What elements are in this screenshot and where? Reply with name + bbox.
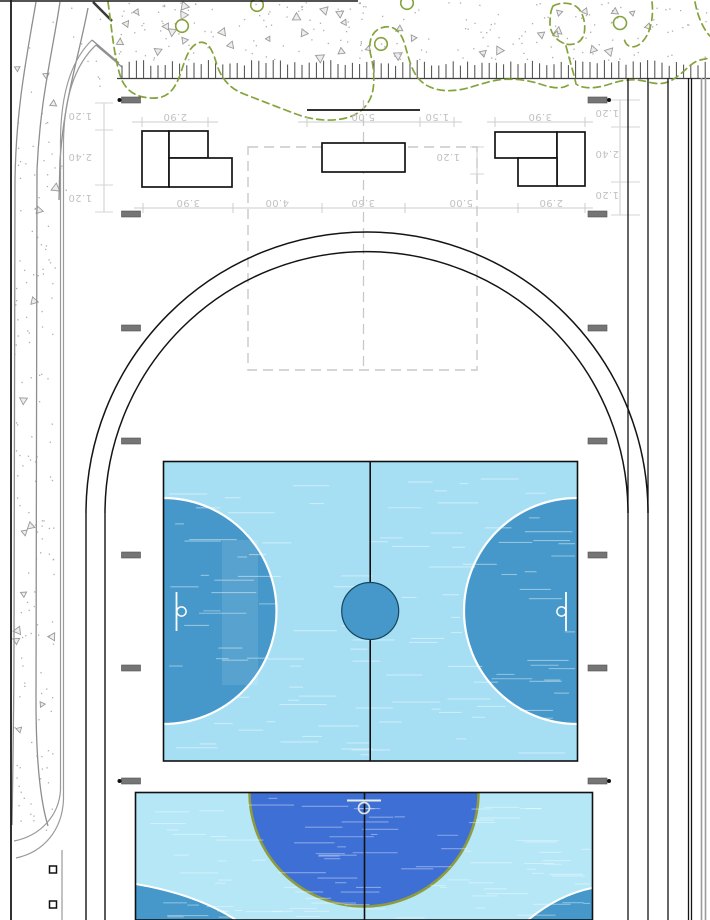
stipple-triangle bbox=[557, 10, 563, 16]
stipple-dot bbox=[17, 765, 18, 766]
tree-symbols bbox=[176, 0, 627, 50]
stipple-dot bbox=[42, 326, 43, 327]
stipple-dot bbox=[359, 58, 360, 59]
stipple-dot bbox=[50, 442, 51, 443]
stipple-dot bbox=[193, 52, 194, 53]
stipple-dot bbox=[245, 49, 246, 50]
stipple-dot bbox=[697, 9, 698, 10]
stipple-dot bbox=[53, 527, 54, 528]
stipple-triangle bbox=[27, 522, 34, 529]
road-curve-mid bbox=[36, 2, 60, 826]
stipple-dot bbox=[52, 283, 53, 284]
stipple-dot bbox=[656, 24, 657, 25]
right-boundary-lines bbox=[628, 78, 706, 920]
stipple-dot bbox=[495, 59, 496, 60]
stipple-triangle bbox=[14, 67, 20, 72]
stipple-dot bbox=[25, 163, 26, 164]
stipple-dot bbox=[268, 13, 269, 14]
stipple-dot bbox=[33, 820, 34, 821]
stipple-dot bbox=[263, 20, 264, 21]
stipple-triangle bbox=[590, 45, 597, 53]
stipple-dot bbox=[555, 26, 556, 27]
stipple-triangle bbox=[338, 48, 345, 55]
stipple-dot bbox=[279, 4, 280, 5]
stipple-dot bbox=[337, 9, 338, 10]
stipple-dot bbox=[544, 17, 545, 18]
stipple-dot bbox=[705, 57, 706, 58]
stipple-dot bbox=[129, 3, 130, 4]
pole-marker-right bbox=[588, 665, 607, 671]
stipple-dot bbox=[61, 165, 62, 166]
stipple-dot bbox=[66, 190, 67, 191]
curb-post-upper bbox=[50, 866, 57, 873]
stipple-dot bbox=[52, 753, 53, 754]
stipple-dot bbox=[73, 36, 74, 37]
stipple-dot bbox=[363, 6, 364, 7]
stipple-dot bbox=[48, 259, 49, 260]
pole-marker-right bbox=[588, 552, 607, 558]
stipple-dot bbox=[33, 815, 34, 816]
stipple-dot bbox=[16, 777, 17, 778]
stipple-triangle bbox=[227, 41, 234, 48]
stipple-dot bbox=[194, 22, 195, 23]
pole-marker-left bbox=[122, 97, 141, 103]
setout-dashed-rectangle bbox=[248, 147, 477, 370]
stipple-dot bbox=[490, 29, 491, 30]
building-left bbox=[142, 131, 232, 187]
stipple-dot bbox=[400, 59, 401, 60]
stipple-dot bbox=[494, 23, 495, 24]
stipple-dot bbox=[47, 186, 48, 187]
stipple-dot bbox=[573, 49, 574, 50]
stipple-dot bbox=[253, 40, 254, 41]
road-curve-outer bbox=[12, 2, 36, 825]
stipple-dot bbox=[306, 2, 307, 3]
stipple-dot bbox=[51, 153, 52, 154]
stipple-dot bbox=[40, 778, 41, 779]
stipple-dot bbox=[403, 19, 404, 20]
site-plan-drawing: 2.90 5.00 1.50 3.90 3.90 4.00 3.60 5.00 … bbox=[0, 0, 710, 920]
stipple-dot bbox=[567, 38, 568, 39]
stipple-dot bbox=[21, 658, 22, 659]
stipple-dot bbox=[283, 45, 284, 46]
stipple-dot bbox=[162, 23, 163, 24]
stipple-dot bbox=[46, 245, 47, 246]
stipple-dot bbox=[53, 574, 54, 575]
stipple-dot bbox=[611, 22, 612, 23]
stipple-dot bbox=[20, 767, 21, 768]
wall-cap-diagonal-2 bbox=[96, 45, 122, 67]
stipple-dot bbox=[38, 197, 39, 198]
stipple-dot bbox=[211, 31, 212, 32]
stipple-dot bbox=[31, 742, 32, 743]
dim-label: 1.50 bbox=[425, 111, 449, 122]
stipple-dot bbox=[48, 782, 49, 783]
stipple-dot bbox=[620, 7, 621, 8]
stipple-triangle bbox=[168, 29, 176, 37]
stipple-dot bbox=[30, 814, 31, 815]
stipple-dot bbox=[145, 55, 146, 56]
stipple-dot bbox=[188, 45, 189, 46]
stipple-dot bbox=[42, 525, 43, 526]
stipple-dot bbox=[656, 8, 657, 9]
dim-label: 2.90 bbox=[539, 197, 563, 208]
stipple-dot bbox=[52, 809, 53, 810]
stipple-dot bbox=[498, 37, 499, 38]
stipple-dot bbox=[52, 424, 53, 425]
stipple-dot bbox=[521, 43, 522, 44]
stipple-dot bbox=[592, 53, 593, 54]
stipple-dot bbox=[532, 23, 533, 24]
pole-marker-right bbox=[588, 325, 607, 331]
stipple-dot bbox=[363, 12, 364, 13]
stipple-dot bbox=[340, 40, 341, 41]
curb-post-lower bbox=[50, 901, 57, 908]
stipple-dot bbox=[99, 78, 100, 79]
dim-label: 1.20 bbox=[68, 192, 92, 203]
stipple-dot bbox=[396, 43, 397, 44]
building-left-block-b bbox=[169, 131, 208, 158]
stipple-dot bbox=[16, 344, 17, 345]
stipple-dot bbox=[382, 16, 383, 17]
stipple-dot bbox=[590, 32, 591, 33]
stipple-triangle bbox=[181, 1, 189, 10]
stipple-dot bbox=[482, 54, 483, 55]
stipple-dot bbox=[18, 805, 19, 806]
stipple-dot bbox=[536, 4, 537, 5]
stipple-triangle bbox=[316, 55, 325, 63]
stipple-dot bbox=[301, 6, 302, 7]
stipple-dot bbox=[53, 22, 54, 23]
futsal-court bbox=[51, 462, 691, 762]
stipple-dot bbox=[21, 382, 22, 383]
stipple-dot bbox=[46, 830, 47, 831]
stipple-dot bbox=[601, 4, 602, 5]
stipple-dot bbox=[165, 38, 166, 39]
stipple-dot bbox=[29, 610, 30, 611]
stipple-dot bbox=[42, 768, 43, 769]
stipple-dot bbox=[271, 25, 272, 26]
stipple-dot bbox=[26, 282, 27, 283]
dim-label: 1.20 bbox=[595, 107, 619, 118]
stipple-dot bbox=[460, 2, 461, 3]
building-right-block-a bbox=[495, 132, 557, 158]
stipple-dot bbox=[48, 750, 49, 751]
stipple-dot bbox=[22, 665, 23, 666]
stipple-dot bbox=[47, 122, 48, 123]
stipple-dot bbox=[21, 821, 22, 822]
pole-marker-left bbox=[122, 665, 141, 671]
stipple-dot bbox=[682, 27, 683, 28]
stipple-dot bbox=[180, 2, 181, 3]
stipple-dot bbox=[43, 160, 44, 161]
stipple-dot bbox=[52, 334, 53, 335]
pole-marker-right bbox=[588, 211, 607, 217]
stipple-dot bbox=[266, 56, 267, 57]
stipple-dot bbox=[256, 45, 257, 46]
futsal-center-circle bbox=[342, 583, 399, 640]
stipple-dot bbox=[16, 288, 17, 289]
stipple-dot bbox=[269, 11, 270, 12]
stipple-dot bbox=[665, 9, 666, 10]
stipple-dot bbox=[32, 231, 33, 232]
stipple-triangle bbox=[630, 11, 635, 16]
stipple-triangle bbox=[154, 49, 162, 56]
stipple-dot bbox=[582, 52, 583, 53]
stipple-triangle bbox=[21, 592, 27, 597]
stipple-dot bbox=[121, 34, 122, 35]
stipple-dot bbox=[27, 330, 28, 331]
stipple-dot bbox=[302, 9, 303, 10]
stipple-dot bbox=[48, 142, 49, 143]
stipple-triangle bbox=[479, 50, 486, 57]
stipple-dot bbox=[40, 552, 41, 553]
site-plan-canvas: 2.90 5.00 1.50 3.90 3.90 4.00 3.60 5.00 … bbox=[0, 0, 710, 920]
stipple-dot bbox=[87, 61, 88, 62]
stipple-dot bbox=[24, 683, 25, 684]
pole-marker-left bbox=[122, 438, 141, 444]
stipple-dot bbox=[96, 61, 97, 62]
stipple-dot bbox=[33, 146, 34, 147]
stipple-triangle bbox=[116, 38, 123, 44]
stipple-dot bbox=[46, 767, 47, 768]
stipple-dot bbox=[52, 480, 53, 481]
stipple-dot bbox=[53, 559, 54, 560]
stipple-dot bbox=[31, 377, 32, 378]
stipple-dot bbox=[525, 31, 526, 32]
stipple-dot bbox=[448, 2, 449, 3]
stipple-dot bbox=[123, 11, 124, 12]
dim-label: 5.00 bbox=[449, 197, 473, 208]
stipple-dot bbox=[16, 300, 17, 301]
stipple-dot bbox=[479, 5, 480, 6]
stipple-dot bbox=[302, 29, 303, 30]
stipple-dot bbox=[705, 21, 706, 22]
stipple-dot bbox=[43, 520, 44, 521]
stipple-dot bbox=[45, 123, 46, 124]
stipple-dot bbox=[20, 161, 21, 162]
stipple-dot bbox=[134, 32, 135, 33]
stipple-dot bbox=[667, 56, 668, 57]
stipple-dot bbox=[195, 3, 196, 4]
vegetation-dashed-line bbox=[108, 2, 570, 120]
stipple-dot bbox=[45, 249, 46, 250]
stipple-triangle bbox=[182, 37, 189, 44]
stipple-dot bbox=[313, 29, 314, 30]
stipple-dot bbox=[20, 178, 21, 179]
stipple-triangle bbox=[341, 19, 347, 25]
building-left-block-c bbox=[169, 158, 232, 187]
pole-marker-dot bbox=[607, 98, 611, 102]
stipple-dot bbox=[26, 317, 27, 318]
pole-marker-left bbox=[122, 325, 141, 331]
stipple-dot bbox=[21, 612, 22, 613]
stipple-dot bbox=[29, 332, 30, 333]
dim-label: 2.90 bbox=[163, 111, 187, 122]
stipple-dot bbox=[298, 11, 299, 12]
stipple-dot bbox=[38, 275, 39, 276]
stipple-dot bbox=[473, 48, 474, 49]
stipple-dot bbox=[41, 756, 42, 757]
vegetation-branch-corner bbox=[695, 2, 710, 36]
dim-label: 1.20 bbox=[436, 151, 460, 162]
stipple-dot bbox=[365, 6, 366, 7]
stipple-dot bbox=[671, 55, 672, 56]
stipple-dot bbox=[17, 497, 18, 498]
stipple-dot bbox=[328, 43, 329, 44]
stipple-dot bbox=[320, 23, 321, 24]
stipple-dot bbox=[418, 9, 419, 10]
stipple-dot bbox=[14, 727, 15, 728]
stipple-dot bbox=[21, 792, 22, 793]
stipple-dot bbox=[381, 43, 382, 44]
stipple-dot bbox=[16, 422, 17, 423]
stipple-dot bbox=[466, 19, 467, 20]
stipple-dot bbox=[154, 57, 155, 58]
stipple-dot bbox=[119, 53, 120, 54]
stipple-dot bbox=[39, 401, 40, 402]
stipple-dot bbox=[100, 19, 101, 20]
stipple-dot bbox=[34, 174, 35, 175]
stipple-dot bbox=[581, 18, 582, 19]
stipple-dot bbox=[491, 24, 492, 25]
stipple-triangle bbox=[20, 398, 28, 405]
stipple-dot bbox=[17, 475, 18, 476]
stipple-dot bbox=[52, 621, 53, 622]
stipple-triangle bbox=[605, 48, 613, 56]
stipple-dot bbox=[52, 697, 53, 698]
stipple-dot bbox=[50, 476, 51, 477]
stipple-dot bbox=[536, 42, 537, 43]
stipple-dot bbox=[399, 54, 400, 55]
stipple-dot bbox=[286, 16, 287, 17]
stipple-triangle bbox=[265, 36, 270, 41]
stipple-dot bbox=[28, 456, 29, 457]
stipple-dot bbox=[153, 59, 154, 60]
stipple-triangle bbox=[21, 530, 27, 536]
stipple-dot bbox=[551, 46, 552, 47]
stipple-dot bbox=[38, 719, 39, 720]
stipple-dot bbox=[41, 374, 42, 375]
stipple-dot bbox=[37, 531, 38, 532]
stipple-dot bbox=[164, 5, 165, 6]
stipple-dot bbox=[653, 19, 654, 20]
stipple-triangle bbox=[16, 727, 22, 733]
stipple-dot bbox=[594, 24, 595, 25]
stipple-dot bbox=[99, 86, 100, 87]
stipple-dot bbox=[31, 436, 32, 437]
stipple-dot bbox=[17, 424, 18, 425]
stipple-dot bbox=[523, 53, 524, 54]
stipple-dot bbox=[361, 41, 362, 42]
stipple-dot bbox=[348, 27, 349, 28]
stipple-dot bbox=[49, 528, 50, 529]
stipple-dot bbox=[498, 14, 499, 15]
stipple-triangle bbox=[50, 100, 57, 106]
stipple-dot bbox=[51, 297, 52, 298]
stipple-dot bbox=[669, 8, 670, 9]
pole-marker-left bbox=[122, 211, 141, 217]
stipple-dot bbox=[164, 6, 165, 7]
stipple-dot bbox=[48, 226, 49, 227]
stipple-dot bbox=[586, 15, 587, 16]
stipple-dot bbox=[346, 31, 347, 32]
stipple-triangle bbox=[122, 21, 128, 28]
stipple-dot bbox=[41, 311, 42, 312]
stipple-dot bbox=[35, 208, 36, 209]
stipple-dot bbox=[487, 46, 488, 47]
stipple-dot bbox=[244, 19, 245, 20]
building-right-block-c bbox=[518, 158, 557, 186]
stipple-dot bbox=[143, 23, 144, 24]
tree-icon bbox=[401, 0, 414, 9]
stipple-dot bbox=[81, 43, 82, 44]
stipple-dot bbox=[47, 378, 48, 379]
stipple-dot bbox=[519, 38, 520, 39]
retaining-wall-inner bbox=[16, 45, 96, 858]
stipple-dot bbox=[474, 23, 475, 24]
stipple-dot bbox=[239, 25, 240, 26]
stipple-dot bbox=[46, 688, 47, 689]
stipple-dot bbox=[667, 32, 668, 33]
stipple-triangle bbox=[40, 702, 45, 708]
stipple-dot bbox=[672, 30, 673, 31]
stipple-dot bbox=[255, 4, 256, 5]
pole-marker-dot bbox=[118, 779, 122, 783]
stipple-dot bbox=[688, 24, 689, 25]
pole-marker-dot bbox=[118, 98, 122, 102]
stipple-dot bbox=[462, 57, 463, 58]
stipple-dot bbox=[49, 636, 50, 637]
stipple-dot bbox=[22, 637, 23, 638]
stipple-dot bbox=[428, 38, 429, 39]
stipple-dot bbox=[204, 31, 205, 32]
stipple-dot bbox=[18, 335, 19, 336]
stipple-dot bbox=[41, 244, 42, 245]
stipple-dot bbox=[479, 52, 480, 53]
stipple-triangle bbox=[218, 28, 226, 36]
pole-marker-right bbox=[588, 97, 607, 103]
stipple-dot bbox=[521, 35, 522, 36]
stipple-dot bbox=[573, 58, 574, 59]
stipple-dot bbox=[158, 12, 159, 13]
pole-marker-right bbox=[588, 438, 607, 444]
stipple-dot bbox=[33, 274, 34, 275]
stipple-triangle bbox=[538, 32, 545, 39]
dim-label: 1.20 bbox=[68, 110, 92, 121]
pole-marker-left bbox=[122, 778, 141, 784]
stipple-dot bbox=[483, 37, 484, 38]
stipple-dot bbox=[144, 29, 145, 30]
stipple-dot bbox=[259, 15, 260, 16]
dim-label: 1.20 bbox=[595, 189, 619, 200]
stipple-dot bbox=[19, 696, 20, 697]
stipple-dot bbox=[527, 59, 528, 60]
stipple-dot bbox=[30, 459, 31, 460]
stipple-dot bbox=[415, 12, 416, 13]
stipple-dot bbox=[540, 3, 541, 4]
stipple-dot bbox=[41, 693, 42, 694]
stipple-dot bbox=[361, 43, 362, 44]
stipple-dot bbox=[160, 30, 161, 31]
stipple-dot bbox=[31, 633, 32, 634]
stipple-dot bbox=[42, 269, 43, 270]
stipple-dot bbox=[638, 52, 639, 53]
stipple-dot bbox=[361, 19, 362, 20]
stipple-dot bbox=[18, 786, 19, 787]
stipple-dot bbox=[20, 210, 21, 211]
stipple-dot bbox=[323, 30, 324, 31]
